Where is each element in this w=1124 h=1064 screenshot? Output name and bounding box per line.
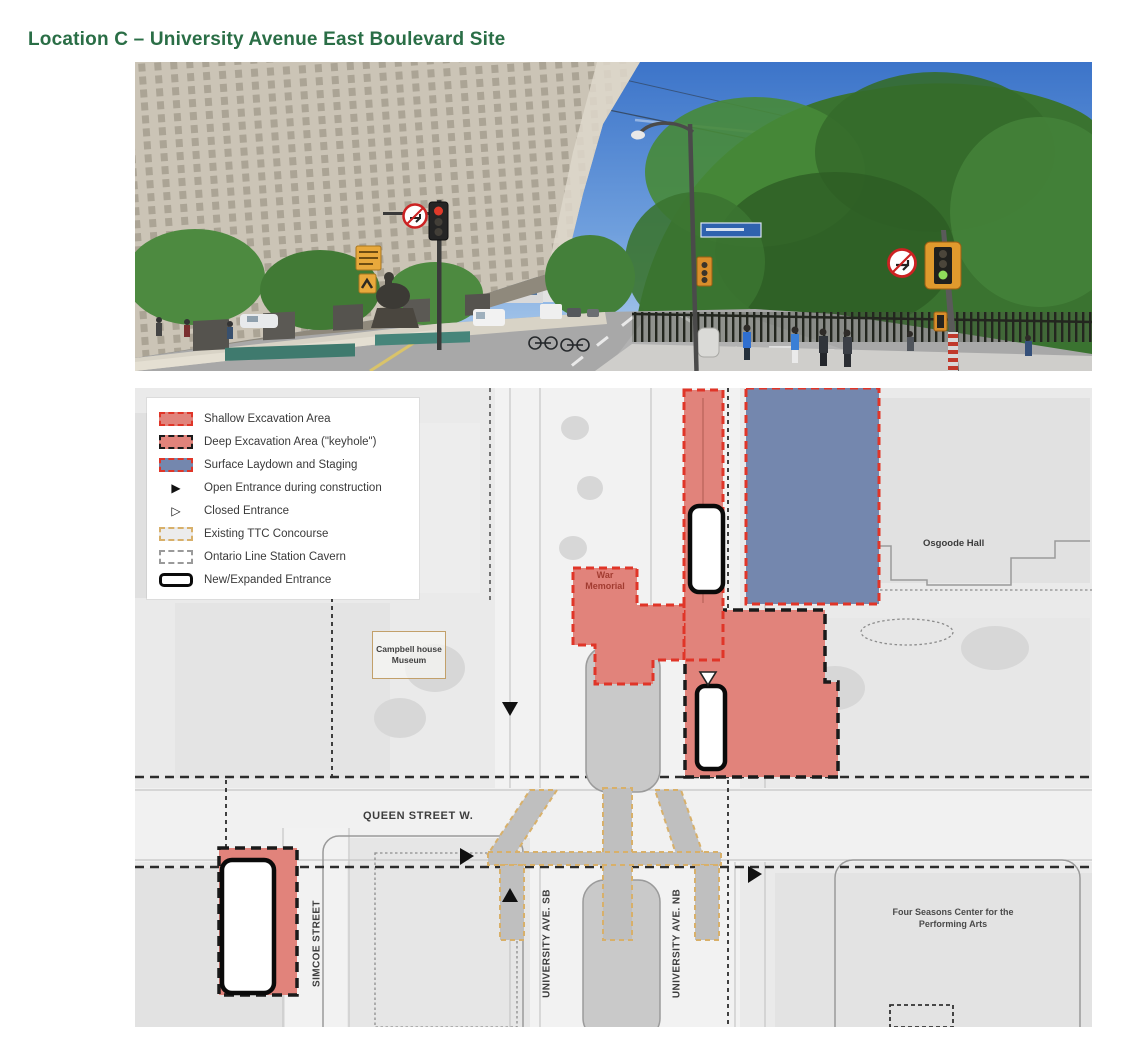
- simcoe-street-label: SIMCOE STREET: [312, 884, 325, 1004]
- university-ave-nb-label: UNIVERSITY AVE. NB: [672, 884, 685, 1004]
- ttc-concourse-swatch: [159, 527, 193, 541]
- shallow-excavation-swatch: [159, 412, 193, 426]
- war-memorial-label: War Memorial: [572, 570, 638, 592]
- green-light: [939, 271, 948, 280]
- red-light: [434, 207, 443, 216]
- queen-street-label: QUEEN STREET W.: [363, 810, 473, 822]
- university-ave-sb-label: UNIVERSITY AVE. SB: [542, 884, 555, 1004]
- new-entrance-swatch: [159, 573, 193, 587]
- page-title: Location C – University Avenue East Boul…: [28, 29, 505, 51]
- legend-label: New/Expanded Entrance: [204, 574, 331, 586]
- map-legend: Shallow Excavation Area Deep Excavation …: [147, 398, 419, 599]
- legend-label: Ontario Line Station Cavern: [204, 551, 346, 563]
- legend-label: Open Entrance during construction: [204, 482, 382, 494]
- four-seasons-block: [775, 873, 1092, 1027]
- legend-item-cavern: Ontario Line Station Cavern: [159, 545, 409, 568]
- station-cavern-swatch: [159, 550, 193, 564]
- site-plan-map: Shallow Excavation Area Deep Excavation …: [135, 388, 1092, 1027]
- legend-item-closed-entrance: ▷ Closed Entrance: [159, 499, 409, 522]
- war-memorial-label-line2: Memorial: [572, 581, 638, 592]
- legend-label: Surface Laydown and Staging: [204, 459, 357, 471]
- legend-item-shallow: Shallow Excavation Area: [159, 407, 409, 430]
- closed-entrance-icon: ▷: [159, 504, 193, 518]
- staging-swatch: [159, 458, 193, 472]
- street-view-photo-art: [135, 62, 1092, 371]
- trash-bin: [698, 328, 719, 357]
- legend-item-open-entrance: ▶ Open Entrance during construction: [159, 476, 409, 499]
- legend-item-ttc: Existing TTC Concourse: [159, 522, 409, 545]
- open-entrance-icon: ▶: [159, 481, 193, 495]
- legend-item-new-entrance: New/Expanded Entrance: [159, 568, 409, 591]
- entrance-north: [690, 506, 723, 592]
- war-memorial-label-line1: War: [572, 570, 638, 581]
- entrance-east: [697, 686, 725, 769]
- legend-label: Existing TTC Concourse: [204, 528, 328, 540]
- four-seasons-label-line1: Four Seasons Center for the: [877, 906, 1029, 918]
- legend-label: Deep Excavation Area ("keyhole"): [204, 436, 376, 448]
- legend-item-staging: Surface Laydown and Staging: [159, 453, 409, 476]
- deep-excavation-swatch: [159, 435, 193, 449]
- four-seasons-label: Four Seasons Center for the Performing A…: [877, 906, 1029, 930]
- campbell-label-line1: Campbell house: [376, 644, 442, 655]
- campbell-label-line2: Museum: [376, 655, 442, 666]
- lamp-head: [631, 131, 645, 140]
- entrance-simcoe: [222, 860, 274, 993]
- four-seasons-label-line2: Performing Arts: [877, 918, 1029, 930]
- legend-item-deep: Deep Excavation Area ("keyhole"): [159, 430, 409, 453]
- legend-label: Shallow Excavation Area: [204, 413, 331, 425]
- striped-pole-base: [948, 332, 958, 371]
- campbell-house-label: Campbell house Museum: [372, 631, 446, 679]
- legend-label: Closed Entrance: [204, 505, 289, 517]
- staging-area: [746, 388, 879, 604]
- street-view-photo: [135, 62, 1092, 371]
- osgoode-hall-label: Osgoode Hall: [923, 538, 984, 549]
